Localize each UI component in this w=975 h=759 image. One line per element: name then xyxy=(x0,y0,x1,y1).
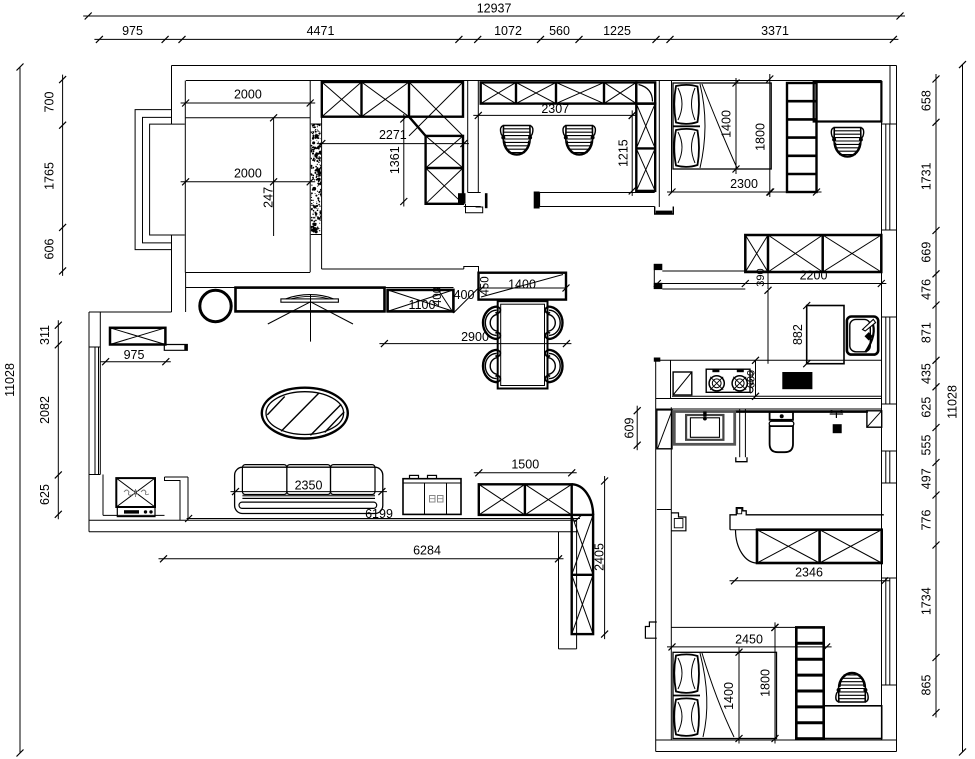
svg-text:4471: 4471 xyxy=(307,24,335,38)
svg-text:871: 871 xyxy=(920,322,934,343)
svg-text:2000: 2000 xyxy=(234,166,262,180)
svg-text:700: 700 xyxy=(43,92,57,113)
svg-text:2450: 2450 xyxy=(735,633,763,647)
svg-text:606: 606 xyxy=(43,239,57,260)
svg-text:625: 625 xyxy=(920,397,934,418)
svg-text:2405: 2405 xyxy=(593,543,607,571)
svg-text:1072: 1072 xyxy=(494,24,522,38)
svg-text:1225: 1225 xyxy=(603,24,631,38)
svg-text:2350: 2350 xyxy=(295,478,323,492)
svg-text:1800: 1800 xyxy=(754,123,768,151)
svg-text:1731: 1731 xyxy=(920,162,934,190)
svg-text:625: 625 xyxy=(38,484,52,505)
svg-text:11028: 11028 xyxy=(946,385,960,419)
svg-text:2082: 2082 xyxy=(38,396,52,424)
svg-text:555: 555 xyxy=(920,435,934,456)
svg-text:1765: 1765 xyxy=(43,162,57,190)
svg-text:1800: 1800 xyxy=(759,669,773,697)
svg-text:2900: 2900 xyxy=(461,330,489,344)
svg-text:3371: 3371 xyxy=(761,24,789,38)
svg-text:390: 390 xyxy=(755,268,767,286)
svg-text:1400: 1400 xyxy=(720,110,734,138)
svg-text:600: 600 xyxy=(746,370,758,388)
svg-text:1400: 1400 xyxy=(508,278,536,292)
svg-text:882: 882 xyxy=(791,324,805,345)
svg-text:2307: 2307 xyxy=(541,102,569,116)
svg-text:658: 658 xyxy=(920,90,934,111)
svg-text:975: 975 xyxy=(122,24,143,38)
svg-text:311: 311 xyxy=(38,325,52,345)
svg-text:975: 975 xyxy=(124,348,145,362)
svg-text:2200: 2200 xyxy=(800,269,828,283)
svg-text:2346: 2346 xyxy=(795,565,823,579)
svg-text:11028: 11028 xyxy=(3,363,17,397)
svg-text:2300: 2300 xyxy=(730,177,758,191)
svg-text:435: 435 xyxy=(920,363,934,384)
svg-text:1215: 1215 xyxy=(617,139,631,167)
svg-text:2271: 2271 xyxy=(379,128,407,142)
svg-text:560: 560 xyxy=(549,24,570,38)
svg-text:247: 247 xyxy=(262,187,276,208)
svg-text:865: 865 xyxy=(920,675,934,696)
svg-text:497: 497 xyxy=(920,468,934,489)
svg-text:6199: 6199 xyxy=(365,507,393,521)
svg-text:1361: 1361 xyxy=(388,146,402,174)
svg-text:1500: 1500 xyxy=(511,457,539,471)
svg-text:450: 450 xyxy=(480,276,492,295)
svg-text:776: 776 xyxy=(920,510,934,531)
svg-text:476: 476 xyxy=(920,279,934,300)
svg-text:669: 669 xyxy=(920,242,934,263)
svg-text:12937: 12937 xyxy=(477,2,512,16)
svg-text:6284: 6284 xyxy=(413,543,441,557)
svg-text:1400: 1400 xyxy=(722,682,736,710)
svg-text:1734: 1734 xyxy=(920,587,934,615)
svg-text:609: 609 xyxy=(623,418,637,439)
svg-text:2000: 2000 xyxy=(234,88,262,102)
